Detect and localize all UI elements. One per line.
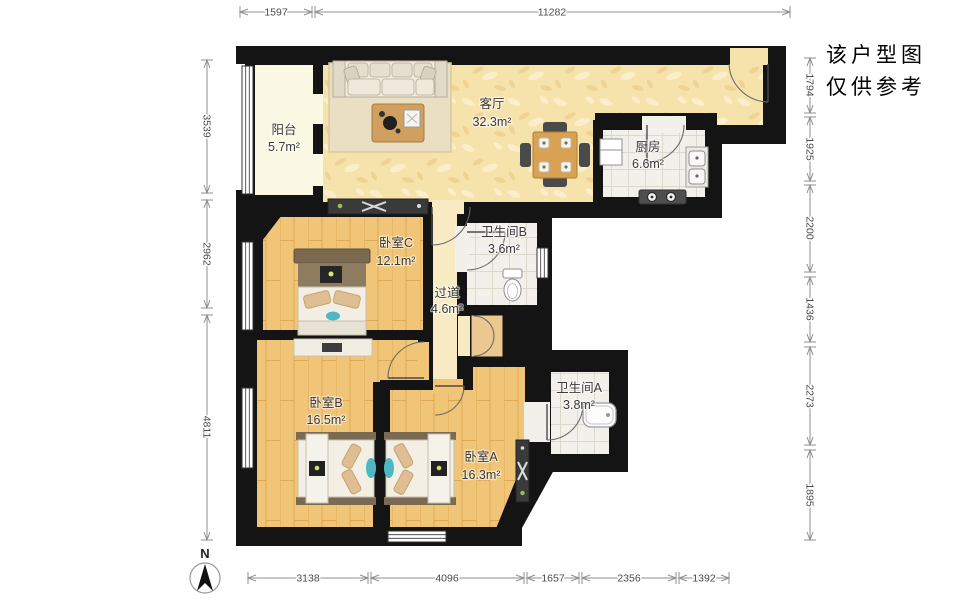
- dim-top-1: 11282: [315, 6, 790, 19]
- tv-cabinet-living: [328, 199, 428, 214]
- window: [537, 248, 548, 278]
- svg-text:1392: 1392: [692, 573, 716, 585]
- svg-text:3539: 3539: [201, 114, 213, 138]
- svg-text:2200: 2200: [804, 216, 816, 240]
- svg-text:1925: 1925: [804, 137, 816, 161]
- dim-right-3: 1436: [804, 277, 817, 342]
- room-label-living: 客厅: [479, 96, 504, 111]
- room-label-bedroom-b: 卧室B: [309, 395, 342, 410]
- room-label-balcony: 阳台: [271, 122, 296, 137]
- svg-text:1436: 1436: [804, 297, 816, 321]
- floorplan-page: 阳台 5.7m² 客厅 32.3m² 厨房 6.6m² 卧室C 12.1m² 卫…: [0, 0, 975, 599]
- dim-bottom-3: 2356: [582, 572, 676, 585]
- dim-left-1: 2962: [201, 200, 214, 308]
- room-area-bathroom-a: 3.8m²: [563, 398, 595, 412]
- bed-a: [384, 432, 456, 505]
- dim-bottom-1: 4096: [371, 572, 524, 585]
- room-label-kitchen: 厨房: [635, 139, 660, 154]
- closet: [468, 312, 506, 360]
- room-area-kitchen: 6.6m²: [632, 157, 664, 171]
- svg-text:4096: 4096: [435, 573, 459, 585]
- svg-text:11282: 11282: [538, 7, 567, 19]
- kitchen-sink: [686, 147, 708, 187]
- window: [242, 242, 253, 330]
- room-area-living: 32.3m²: [473, 115, 512, 129]
- compass-north-label: N: [200, 546, 209, 561]
- dim-top-0: 1597: [240, 6, 312, 19]
- note-line-2: 仅供参考: [826, 75, 926, 99]
- dim-right-5: 1895: [804, 450, 817, 540]
- svg-text:4811: 4811: [201, 416, 213, 439]
- tv-cabinet-bedroom-a: [516, 440, 529, 502]
- room-area-bathroom-b: 3.6m²: [488, 242, 520, 256]
- svg-text:1895: 1895: [804, 483, 816, 507]
- window: [388, 531, 446, 542]
- svg-text:1794: 1794: [804, 73, 816, 97]
- window: [242, 388, 253, 468]
- room-label-hallway: 过道: [434, 286, 460, 300]
- room-label-bedroom-a: 卧室A: [464, 449, 498, 464]
- room-label-bedroom-c: 卧室C: [379, 235, 413, 250]
- dim-right-1: 1925: [804, 117, 817, 181]
- coffee-table: [372, 104, 424, 142]
- svg-text:3138: 3138: [296, 573, 320, 585]
- floorplan-drawing: 阳台 5.7m² 客厅 32.3m² 厨房 6.6m² 卧室C 12.1m² 卫…: [0, 0, 975, 599]
- room-label-bathroom-b: 卫生间B: [481, 225, 527, 239]
- dim-bottom-4: 1392: [679, 572, 729, 585]
- sofa: [333, 61, 447, 97]
- note-line-1: 该户型图: [826, 43, 926, 67]
- dim-bottom-0: 3138: [248, 572, 368, 585]
- bed-b: [296, 432, 376, 505]
- window: [242, 66, 253, 194]
- room-area-hallway: 4.6m²: [431, 302, 463, 316]
- stove: [639, 190, 686, 204]
- dresser: [294, 339, 372, 356]
- reference-note: 该户型图 仅供参考: [826, 43, 926, 99]
- dim-right-2: 2200: [804, 185, 817, 272]
- compass: N: [190, 546, 220, 593]
- room-area-bedroom-a: 16.3m²: [462, 468, 501, 482]
- room-area-bedroom-c: 12.1m²: [377, 254, 416, 268]
- dim-bottom-2: 1657: [527, 572, 579, 585]
- svg-text:1597: 1597: [264, 7, 288, 19]
- dim-left-0: 3539: [201, 60, 214, 193]
- fridge: [600, 139, 622, 165]
- room-area-bedroom-b: 16.5m²: [307, 413, 346, 427]
- compass-needle-icon: [197, 564, 213, 591]
- bed-c: [294, 249, 370, 335]
- dim-left-2: 4811: [201, 315, 214, 540]
- dim-right-0: 1794: [804, 58, 817, 113]
- svg-text:2273: 2273: [804, 384, 816, 408]
- dim-right-4: 2273: [804, 347, 817, 445]
- svg-text:2356: 2356: [617, 573, 641, 585]
- svg-text:1657: 1657: [541, 573, 565, 585]
- room-area-balcony: 5.7m²: [268, 140, 300, 154]
- room-label-bathroom-a: 卫生间A: [556, 381, 603, 395]
- svg-text:2962: 2962: [201, 242, 213, 266]
- toilet: [503, 269, 522, 301]
